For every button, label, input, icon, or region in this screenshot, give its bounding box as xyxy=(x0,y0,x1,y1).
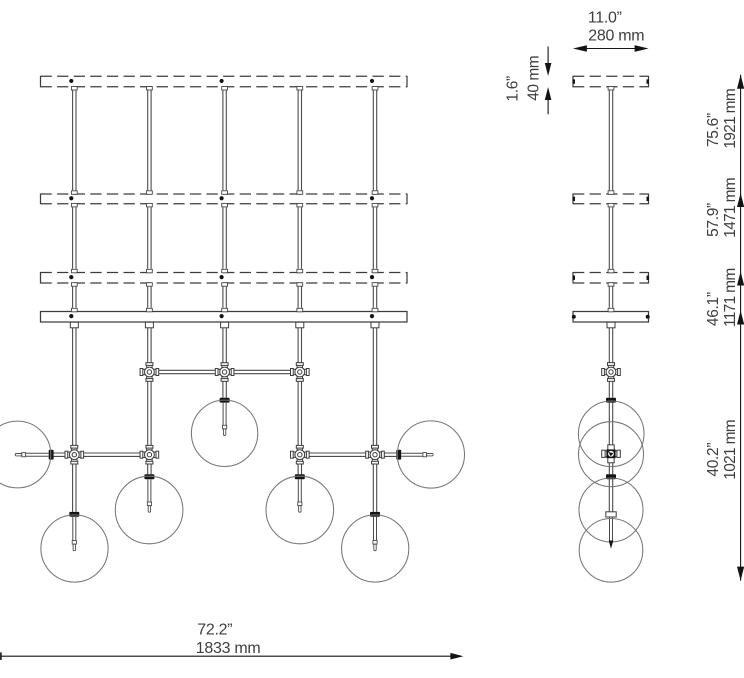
svg-text:46.1”: 46.1” xyxy=(705,292,722,326)
svg-text:40.2”: 40.2” xyxy=(705,443,722,477)
svg-text:11.0”: 11.0” xyxy=(588,10,622,27)
svg-text:40 mm: 40 mm xyxy=(526,56,543,101)
svg-text:75.6”: 75.6” xyxy=(705,113,722,147)
svg-text:1471 mm: 1471 mm xyxy=(722,178,739,238)
svg-text:1833 mm: 1833 mm xyxy=(196,640,261,657)
svg-text:280 mm: 280 mm xyxy=(588,27,644,44)
svg-text:1921 mm: 1921 mm xyxy=(722,89,739,149)
svg-text:1171 mm: 1171 mm xyxy=(722,268,739,327)
svg-text:1021 mm: 1021 mm xyxy=(722,420,739,480)
svg-text:57.9”: 57.9” xyxy=(705,203,722,237)
svg-text:72.2”: 72.2” xyxy=(197,622,232,639)
svg-text:1.6”: 1.6” xyxy=(504,76,521,102)
